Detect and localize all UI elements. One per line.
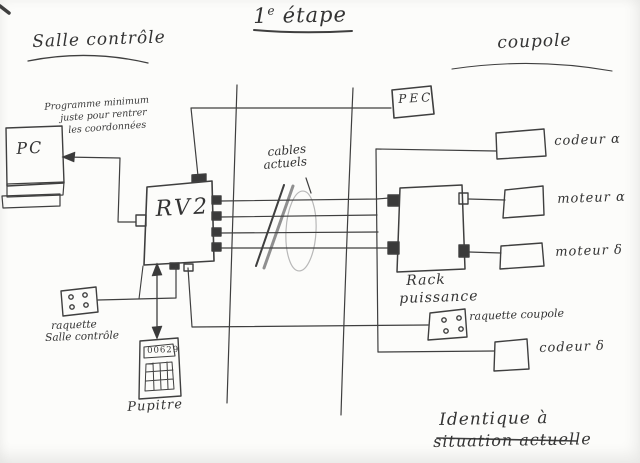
rack-label-line1: Rack [406,273,446,288]
rv2-right-connector-2 [212,212,221,220]
note-identique-line2: situation actuelle [433,431,592,450]
title-word: étape [282,2,347,27]
raquette-coupole-dot [444,329,448,333]
wall-line-right [341,88,353,415]
rv2-top-connector [192,174,206,182]
codeur-delta-box [494,339,529,371]
rv2-left-connector [136,215,146,226]
raquette-salle-dot [83,293,87,297]
rv2-right-connector-4 [212,243,221,251]
rack-label-line2: puissance [399,289,479,306]
pupitre-arrowhead-down [152,326,162,339]
moteur-delta-box [500,243,544,269]
wire-rack-moteur-delta [469,252,501,253]
raquette-salle-dot [70,305,74,309]
diagram-strokes-layer [0,0,640,463]
raquette-salle-label-line2: Salle contrôle [45,330,119,343]
codeur-bus-vertical [376,149,378,352]
cables-ellipse [284,190,318,271]
title-underline [254,30,352,32]
zone-label-coupole: coupole [497,32,572,52]
coupole-underline [452,63,612,71]
wire-rv2-to-pc [64,157,136,222]
rack-left-bottom-connector [388,242,399,254]
note-cables-line2: actuels [263,155,307,171]
note-identique-line1: Identique à [439,410,549,429]
wire-to-codeur-alpha [376,149,496,151]
pc-arrowhead [62,152,75,162]
title-number: 1 [253,4,268,28]
raquette-coupole-dot [457,316,461,320]
rack-box [397,185,465,272]
rv2-label: RV2 [155,196,211,221]
scan-corner-mark [0,6,9,13]
codeur-alpha-box [496,129,546,159]
cables-pointer-line [306,178,311,193]
wire-rv2-to-raquette-coupole [188,268,428,327]
moteur-alpha-label: moteur α [557,191,626,206]
diagram-title: 1eétape [253,3,347,27]
wire-rv2-codeur-bus-a [221,215,377,217]
raquette-salle-dot [84,303,88,307]
rv2-corner-stray-line [139,266,143,299]
codeur-delta-label: codeur δ [539,340,605,355]
raquette-coupole-box [428,309,467,340]
raquette-coupole-dot [459,327,463,331]
raquette-salle-box [61,287,98,316]
pupitre-display-value: 00629 [147,346,179,356]
pupitre-keypad-grid [145,362,174,391]
wire-to-codeur-delta [378,351,494,352]
codeur-alpha-label: codeur α [554,133,621,148]
rv2-bottom-connector-filled [170,263,179,269]
pupitre-label: Pupitre [127,398,183,414]
salle-controle-underline [28,55,148,63]
rack-right-top-connector [459,193,468,204]
raquette-coupole-label: raquette coupole [469,308,564,322]
wire-rv2-rack-top [221,198,389,201]
rv2-right-connector-1 [212,196,221,204]
wire-rv2-codeur-bus-b [221,232,378,233]
raquette-salle-dot [69,295,73,299]
moteur-delta-label: moteur δ [555,244,623,259]
title-superscript: e [267,4,275,18]
zone-label-salle-controle: Salle contrôle [32,29,166,51]
hand-drawn-diagram: 1eétape Salle contrôle coupole Programme… [0,0,640,463]
wire-rack-moteur-alpha [468,199,505,200]
rack-left-top-connector [388,195,399,206]
raquette-coupole-dot [442,318,446,322]
moteur-alpha-box [503,186,544,218]
pc-label: PC [16,140,44,157]
rack-right-bottom-connector [459,245,469,257]
pec-label: PEC [398,91,434,105]
rv2-right-connector-3 [212,228,221,236]
wall-line-left [227,85,237,403]
wire-raquette-salle-to-rv2 [98,266,176,300]
